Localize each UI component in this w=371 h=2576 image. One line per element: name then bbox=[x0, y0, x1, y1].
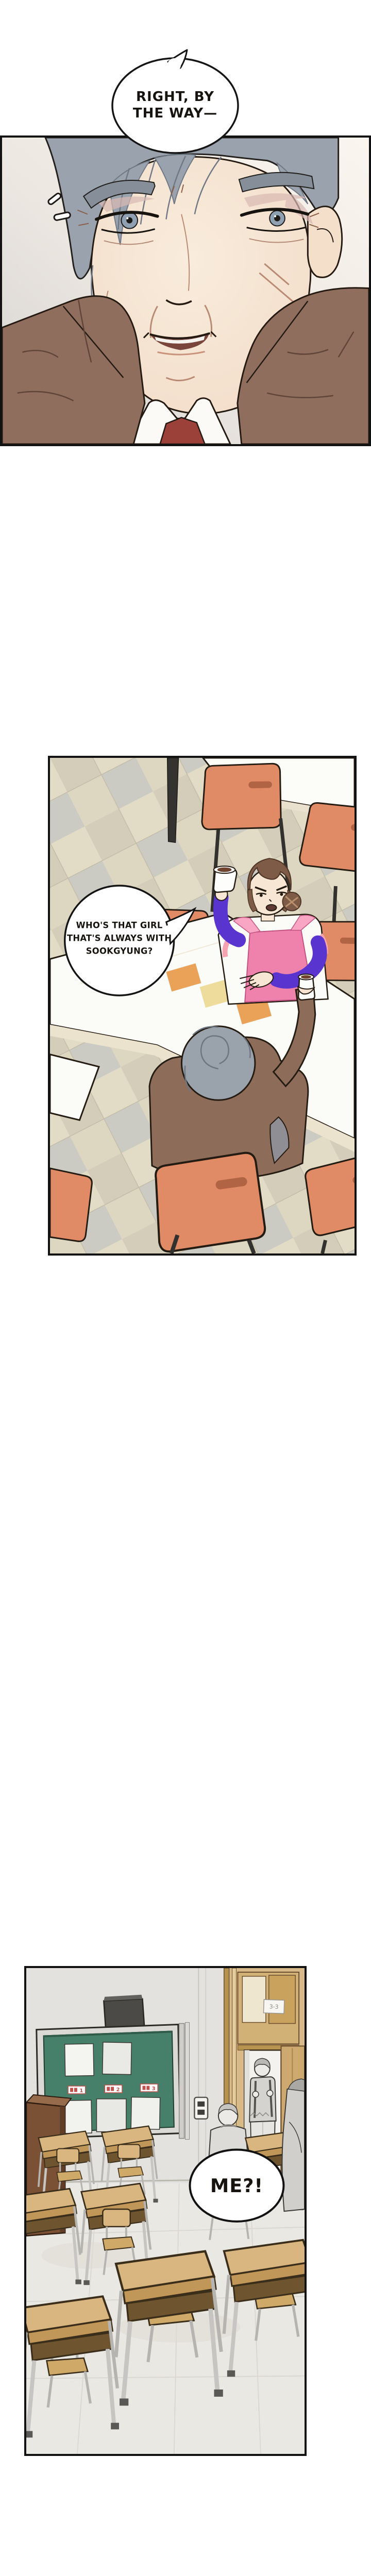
mug bbox=[214, 866, 237, 892]
bubble-text-line: SOOKGYUNG? bbox=[86, 946, 153, 956]
board-frame bbox=[179, 2024, 184, 2139]
group-tag-3: 3 bbox=[141, 2084, 158, 2092]
svg-text:1: 1 bbox=[79, 2088, 83, 2094]
bubble-text-line: THAT'S ALWAYS WITH bbox=[67, 933, 172, 943]
group-tag-2: 2 bbox=[105, 2085, 122, 2093]
cafeteria-art: WHO'S THAT GIRL THAT'S ALWAYS WITH SOOKG… bbox=[50, 758, 355, 1253]
board-frame bbox=[185, 2023, 190, 2140]
man-closeup-art bbox=[2, 138, 369, 444]
svg-text:2: 2 bbox=[116, 2087, 120, 2093]
light-switch bbox=[194, 2097, 208, 2119]
panel-classroom: 1 2 3 bbox=[24, 1966, 307, 2456]
group-tag-1: 1 bbox=[68, 2086, 86, 2094]
speech-bubble-man: RIGHT, BY THE WAY— bbox=[103, 41, 252, 165]
open-mouth bbox=[266, 905, 277, 911]
classroom-art: 1 2 3 bbox=[26, 1968, 305, 2454]
bubble-text-line: ME?! bbox=[210, 2175, 263, 2197]
svg-text:3: 3 bbox=[152, 2086, 156, 2092]
chair-fragment bbox=[50, 1168, 92, 1242]
bubble-text-line: WHO'S THAT GIRL bbox=[76, 921, 163, 930]
webtoon-page: RIGHT, BY THE WAY— bbox=[0, 0, 371, 2576]
man-ear bbox=[308, 207, 342, 278]
chair bbox=[155, 1152, 266, 1252]
panel-man-closeup bbox=[0, 135, 371, 446]
svg-text:3-3: 3-3 bbox=[269, 2003, 279, 2010]
chair bbox=[201, 759, 285, 834]
bubble-text-line: THE WAY— bbox=[133, 106, 217, 121]
speech-bubble-me: ME?! bbox=[190, 2150, 283, 2222]
panel-cafeteria: WHO'S THAT GIRL THAT'S ALWAYS WITH SOOKG… bbox=[48, 756, 357, 1256]
bubble-text-line: RIGHT, BY bbox=[136, 89, 214, 105]
paper-cup bbox=[298, 974, 315, 1000]
